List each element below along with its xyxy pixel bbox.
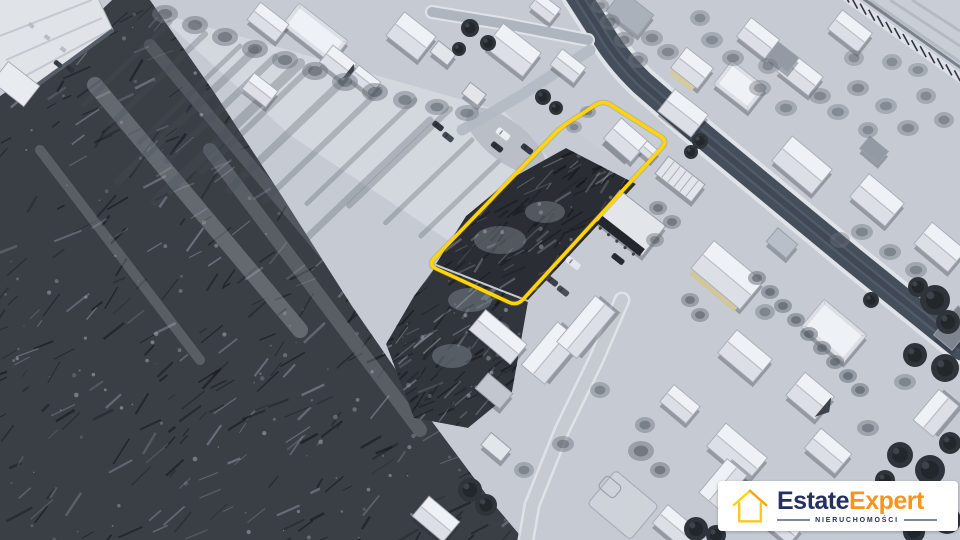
brand-subtitle-row: NIERUCHOMOŚCI xyxy=(777,517,937,524)
house-icon xyxy=(732,487,768,525)
watermark-logo: EstateExpert NIERUCHOMOŚCI xyxy=(718,481,958,531)
aerial-photo xyxy=(0,0,960,540)
subtitle-rule-right xyxy=(904,519,937,521)
subtitle-rule-left xyxy=(777,519,810,521)
brand-subtitle: NIERUCHOMOŚCI xyxy=(815,517,899,524)
screenshot-root: EstateExpert NIERUCHOMOŚCI xyxy=(0,0,960,540)
brand-text: EstateExpert NIERUCHOMOŚCI xyxy=(777,489,947,524)
brand-estate: Estate xyxy=(777,487,849,515)
brand-name: EstateExpert xyxy=(777,489,937,514)
brand-expert: Expert xyxy=(849,487,924,515)
